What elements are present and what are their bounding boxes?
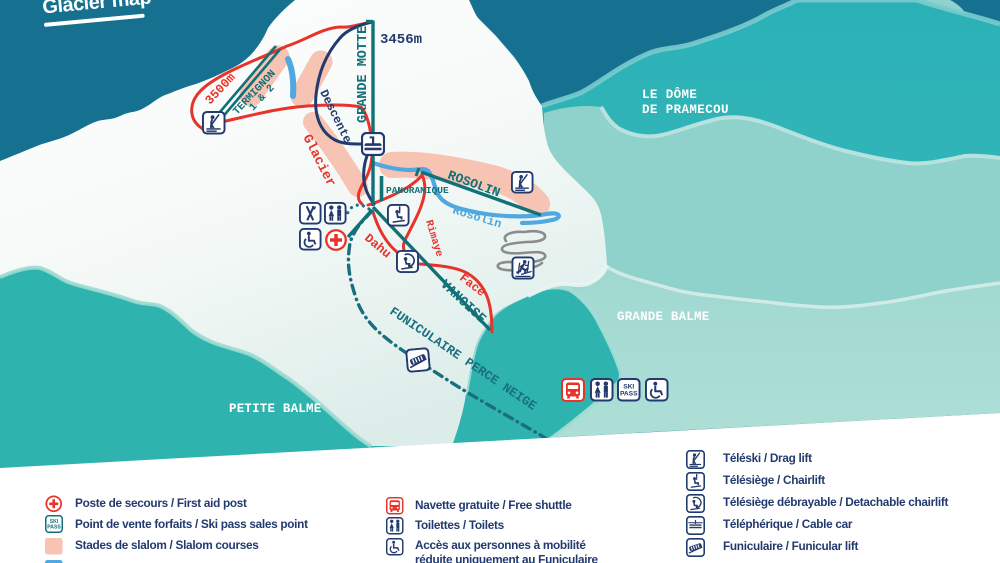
svg-text:Téléphérique / Cable car: Téléphérique / Cable car [723, 517, 853, 531]
svg-text:Funiculaire / Funicular lift: Funiculaire / Funicular lift [723, 539, 859, 553]
svg-text:GRANDE BALME: GRANDE BALME [617, 310, 709, 324]
svg-text:PANORAMIQUE: PANORAMIQUE [386, 185, 449, 196]
svg-text:Accès aux personnes à mobilité: Accès aux personnes à mobilité [415, 538, 586, 552]
svg-text:Télésiège / Chairlift: Télésiège / Chairlift [723, 473, 825, 487]
svg-text:GRANDE MOTTE: GRANDE MOTTE [356, 26, 371, 123]
svg-text:PETITE BALME: PETITE BALME [229, 402, 321, 416]
svg-text:Point de vente forfaits / Ski: Point de vente forfaits / Ski pass sales… [75, 517, 308, 531]
svg-text:Toilettes / Toilets: Toilettes / Toilets [415, 518, 505, 532]
svg-text:Navette gratuite / Free shuttl: Navette gratuite / Free shuttle [415, 498, 572, 512]
svg-text:Poste de secours / First aid p: Poste de secours / First aid post [75, 496, 247, 510]
svg-text:DE PRAMECOU: DE PRAMECOU [642, 103, 729, 117]
svg-text:réduite uniquement au Funicula: réduite uniquement au Funiculaire [415, 553, 599, 563]
svg-text:LE DÔME: LE DÔME [642, 87, 697, 102]
svg-text:Stades de slalom / Slalom cour: Stades de slalom / Slalom courses [75, 538, 259, 552]
svg-text:Télésiège débrayable / Detacha: Télésiège débrayable / Detachable chairl… [723, 495, 948, 509]
svg-text:Téléski / Drag lift: Téléski / Drag lift [723, 451, 812, 465]
svg-text:3456m: 3456m [380, 32, 422, 48]
